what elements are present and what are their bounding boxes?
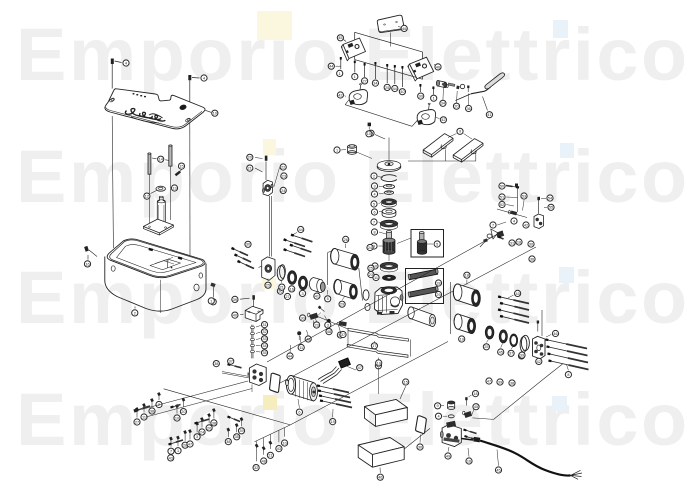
svg-text:6: 6 — [298, 411, 300, 415]
svg-text:47: 47 — [358, 366, 362, 370]
svg-text:27: 27 — [285, 295, 289, 299]
svg-text:34: 34 — [373, 82, 377, 86]
svg-text:27: 27 — [135, 420, 139, 424]
svg-text:16: 16 — [467, 459, 471, 463]
svg-text:48: 48 — [327, 330, 331, 334]
svg-text:19: 19 — [377, 361, 381, 365]
svg-text:30: 30 — [246, 243, 250, 247]
svg-text:24: 24 — [368, 246, 372, 250]
svg-text:11: 11 — [374, 276, 378, 280]
svg-text:33: 33 — [262, 337, 266, 341]
svg-text:1: 1 — [336, 148, 338, 152]
svg-text:45: 45 — [474, 405, 478, 409]
svg-text:38: 38 — [212, 421, 216, 425]
svg-text:47: 47 — [188, 442, 192, 446]
svg-text:4: 4 — [373, 192, 375, 196]
svg-text:21: 21 — [248, 167, 252, 171]
svg-text:25: 25 — [385, 86, 389, 90]
svg-text:24: 24 — [200, 430, 204, 434]
svg-text:23: 23 — [369, 273, 373, 277]
svg-text:49: 49 — [446, 454, 450, 458]
svg-text:43: 43 — [515, 292, 519, 296]
svg-text:18: 18 — [465, 274, 469, 278]
svg-text:7: 7 — [373, 220, 375, 224]
svg-text:6: 6 — [373, 210, 375, 214]
svg-text:40: 40 — [233, 314, 237, 318]
svg-text:4: 4 — [513, 219, 515, 223]
svg-text:44: 44 — [299, 228, 303, 232]
svg-text:17: 17 — [372, 344, 376, 348]
svg-text:18: 18 — [517, 240, 521, 244]
svg-text:28: 28 — [436, 281, 440, 285]
svg-text:31: 31 — [262, 323, 266, 327]
svg-text:9: 9 — [459, 130, 461, 134]
svg-text:50: 50 — [500, 184, 504, 188]
svg-text:3: 3 — [301, 292, 303, 296]
svg-text:37: 37 — [341, 333, 345, 337]
svg-text:45: 45 — [499, 350, 503, 354]
svg-text:43: 43 — [169, 456, 173, 460]
svg-text:41: 41 — [315, 295, 319, 299]
svg-text:52: 52 — [500, 203, 504, 207]
svg-text:10: 10 — [213, 112, 217, 116]
svg-text:38: 38 — [150, 409, 154, 413]
svg-text:37: 37 — [509, 352, 513, 356]
svg-text:39: 39 — [498, 380, 502, 384]
svg-text:38: 38 — [214, 362, 218, 366]
svg-text:48: 48 — [262, 459, 266, 463]
svg-text:53: 53 — [522, 194, 526, 198]
svg-text:41: 41 — [487, 113, 491, 117]
svg-text:55: 55 — [549, 206, 553, 210]
svg-text:35: 35 — [235, 435, 239, 439]
svg-text:3: 3 — [327, 323, 329, 327]
svg-text:34: 34 — [441, 102, 445, 106]
svg-text:15: 15 — [179, 165, 183, 169]
svg-text:30: 30 — [300, 316, 304, 320]
svg-text:44: 44 — [329, 65, 333, 69]
svg-text:19: 19 — [460, 337, 464, 341]
svg-text:12: 12 — [145, 195, 149, 199]
svg-text:23: 23 — [282, 174, 286, 178]
svg-text:35: 35 — [262, 351, 266, 355]
svg-text:10: 10 — [175, 416, 179, 420]
svg-text:18: 18 — [473, 392, 477, 396]
svg-text:25: 25 — [369, 267, 373, 271]
svg-text:54: 54 — [548, 196, 552, 200]
svg-text:21: 21 — [268, 454, 272, 458]
svg-text:4: 4 — [437, 415, 439, 419]
svg-text:20: 20 — [454, 105, 458, 109]
svg-text:43: 43 — [277, 447, 281, 451]
svg-text:42: 42 — [441, 118, 445, 122]
svg-text:14: 14 — [159, 158, 163, 162]
svg-text:16: 16 — [290, 287, 294, 291]
svg-text:4: 4 — [203, 76, 205, 80]
svg-text:46: 46 — [402, 27, 406, 31]
svg-text:8: 8 — [373, 230, 375, 234]
svg-text:1: 1 — [339, 72, 341, 76]
svg-text:7: 7 — [492, 223, 494, 227]
svg-text:5: 5 — [327, 297, 329, 301]
svg-text:8: 8 — [567, 373, 569, 377]
svg-text:47: 47 — [487, 379, 491, 383]
svg-text:36: 36 — [466, 107, 470, 111]
svg-text:46: 46 — [553, 332, 557, 336]
svg-text:15: 15 — [404, 380, 408, 384]
svg-text:45: 45 — [496, 468, 500, 472]
svg-text:39: 39 — [239, 429, 243, 433]
svg-text:20: 20 — [207, 426, 211, 430]
svg-text:23: 23 — [314, 323, 318, 327]
svg-text:42: 42 — [524, 223, 528, 227]
svg-text:31: 31 — [510, 241, 514, 245]
svg-text:39: 39 — [520, 354, 524, 358]
svg-text:9: 9 — [437, 404, 439, 408]
svg-text:2: 2 — [373, 174, 375, 178]
svg-text:34: 34 — [262, 344, 266, 348]
svg-text:7: 7 — [170, 450, 172, 454]
svg-text:20: 20 — [181, 410, 185, 414]
svg-text:4: 4 — [125, 61, 127, 65]
svg-text:24: 24 — [281, 189, 285, 193]
svg-text:1: 1 — [354, 75, 356, 79]
svg-text:22: 22 — [281, 165, 285, 169]
svg-text:36: 36 — [530, 257, 534, 261]
svg-text:5: 5 — [373, 202, 375, 206]
svg-text:30: 30 — [529, 242, 533, 246]
svg-text:20: 20 — [248, 156, 252, 160]
svg-text:30: 30 — [419, 95, 423, 99]
svg-text:46: 46 — [378, 476, 382, 480]
svg-text:32: 32 — [262, 330, 266, 334]
svg-text:11: 11 — [142, 415, 146, 419]
svg-text:25: 25 — [484, 345, 488, 349]
svg-text:10: 10 — [282, 441, 286, 445]
svg-text:37: 37 — [229, 360, 233, 364]
svg-text:11: 11 — [299, 346, 303, 350]
svg-text:38: 38 — [510, 381, 514, 385]
svg-text:44: 44 — [393, 87, 397, 91]
svg-text:5: 5 — [436, 242, 438, 246]
svg-text:1: 1 — [210, 299, 212, 303]
svg-text:16: 16 — [85, 262, 89, 266]
svg-text:13: 13 — [172, 186, 176, 190]
svg-text:29: 29 — [340, 303, 344, 307]
svg-text:45: 45 — [338, 36, 342, 40]
svg-text:42: 42 — [338, 93, 342, 97]
svg-text:26: 26 — [344, 238, 348, 242]
svg-text:19: 19 — [331, 420, 335, 424]
svg-text:3: 3 — [196, 435, 198, 439]
svg-text:46: 46 — [436, 65, 440, 69]
svg-text:42: 42 — [537, 360, 541, 364]
svg-text:27: 27 — [362, 79, 366, 83]
svg-text:29: 29 — [436, 293, 440, 297]
svg-text:30: 30 — [418, 445, 422, 449]
svg-text:1: 1 — [177, 449, 179, 453]
svg-text:2: 2 — [134, 311, 136, 315]
svg-text:44: 44 — [288, 354, 292, 358]
svg-text:21: 21 — [280, 286, 284, 290]
svg-text:25: 25 — [266, 284, 270, 288]
svg-text:3: 3 — [373, 184, 375, 188]
svg-text:51: 51 — [500, 195, 504, 199]
svg-text:39: 39 — [233, 298, 237, 302]
svg-text:1: 1 — [433, 97, 435, 101]
svg-text:40: 40 — [400, 90, 404, 94]
svg-text:10: 10 — [367, 132, 371, 136]
svg-text:38: 38 — [226, 440, 230, 444]
svg-text:32: 32 — [254, 466, 258, 470]
